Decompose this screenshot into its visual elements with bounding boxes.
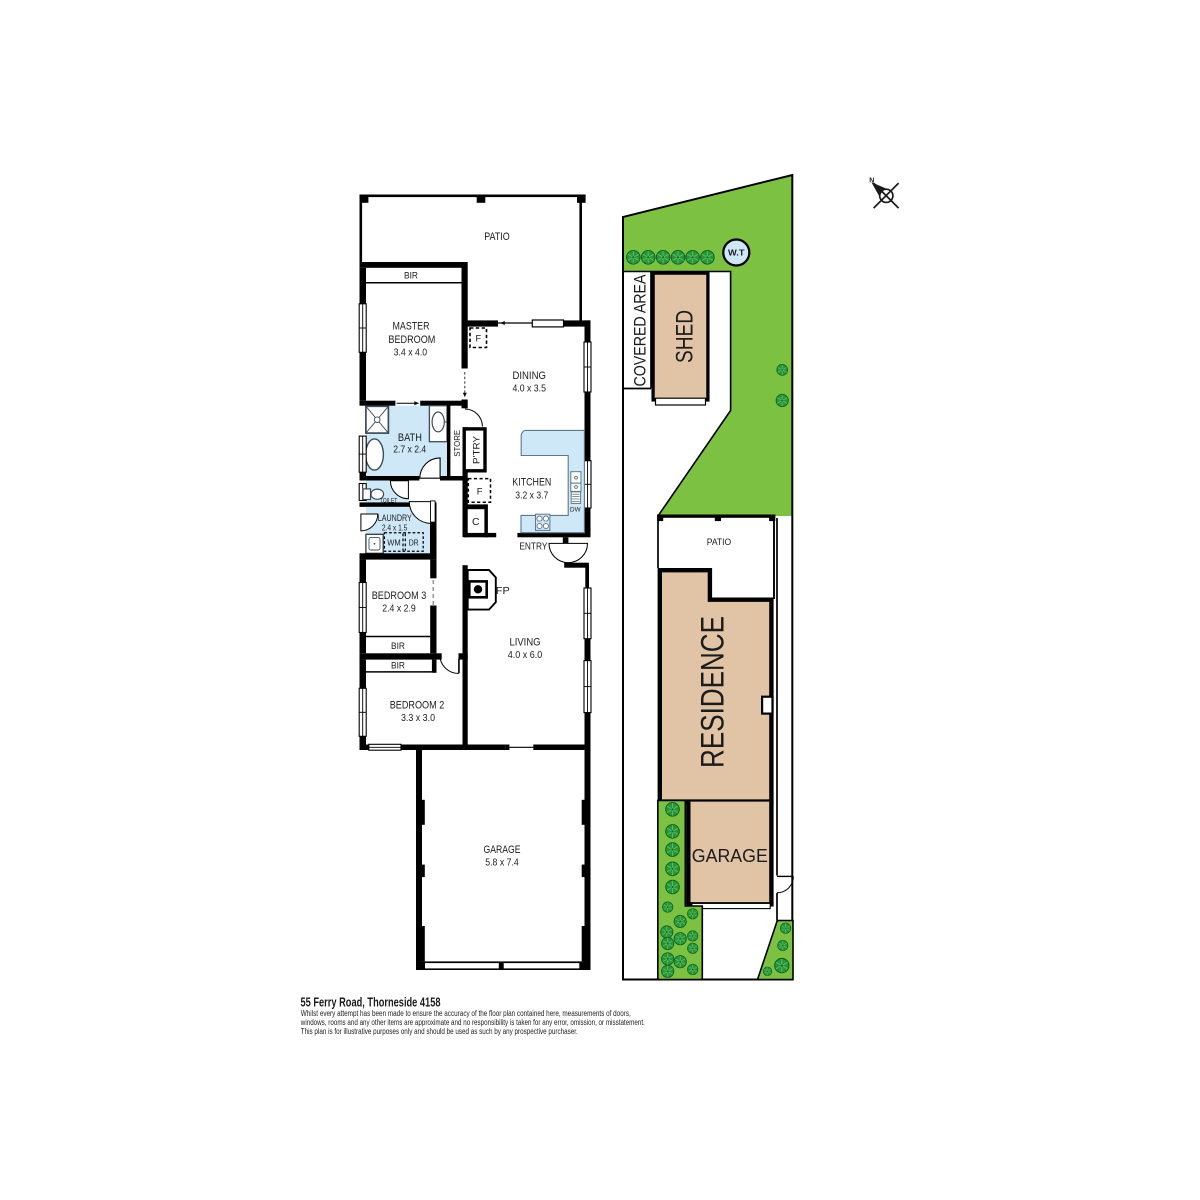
svg-text:GARAGE: GARAGE	[484, 844, 521, 856]
svg-text:PATIO: PATIO	[707, 537, 732, 548]
svg-text:4.0 x 6.0: 4.0 x 6.0	[508, 649, 543, 661]
svg-text:2.7 x 2.4: 2.7 x 2.4	[393, 444, 426, 456]
svg-text:5.8 x 7.4: 5.8 x 7.4	[485, 856, 519, 868]
svg-text:DW: DW	[570, 507, 581, 514]
svg-text:SHED: SHED	[672, 310, 699, 363]
svg-text:GARAGE: GARAGE	[692, 846, 768, 866]
svg-text:4.0 x 3.5: 4.0 x 3.5	[512, 382, 546, 394]
svg-text:C: C	[472, 516, 480, 528]
svg-text:DR: DR	[409, 538, 419, 547]
svg-text:BEDROOM: BEDROOM	[388, 334, 435, 346]
svg-text:WM: WM	[387, 538, 401, 547]
svg-text:BEDROOM 3: BEDROOM 3	[372, 590, 427, 602]
svg-text:DINING: DINING	[512, 370, 546, 382]
svg-text:N: N	[869, 178, 874, 185]
svg-text:P'TRY: P'TRY	[471, 436, 481, 464]
svg-text:LAUNDRY: LAUNDRY	[378, 513, 412, 523]
svg-text:windows, rooms and any other i: windows, rooms and any other items are a…	[300, 1018, 645, 1027]
svg-text:PATIO: PATIO	[484, 231, 510, 243]
svg-text:55 Ferry Road, Thorneside 4158: 55 Ferry Road, Thorneside 4158	[301, 996, 441, 1010]
svg-text:COVERED AREA: COVERED AREA	[631, 274, 650, 387]
svg-text:BIR: BIR	[391, 641, 405, 651]
svg-text:2.4 x 2.9: 2.4 x 2.9	[382, 602, 416, 614]
svg-text:3.4 x 4.0: 3.4 x 4.0	[394, 346, 428, 358]
svg-text:3.2 x 3.7: 3.2 x 3.7	[515, 489, 548, 501]
svg-text:KITCHEN: KITCHEN	[512, 477, 551, 489]
svg-text:RESIDENCE: RESIDENCE	[695, 616, 731, 768]
svg-text:This plan is for illustrative: This plan is for illustrative purposes o…	[301, 1027, 578, 1036]
svg-text:FP: FP	[496, 586, 510, 597]
svg-text:MASTER: MASTER	[393, 321, 430, 333]
svg-text:STORE: STORE	[453, 429, 462, 457]
svg-text:F: F	[477, 486, 483, 496]
svg-text:BIR: BIR	[404, 271, 418, 281]
svg-text:F: F	[476, 334, 482, 344]
svg-text:ENTRY: ENTRY	[519, 541, 547, 552]
svg-text:3.3 x 3.0: 3.3 x 3.0	[401, 712, 435, 724]
svg-text:BATH: BATH	[398, 432, 422, 444]
svg-text:BEDROOM 2: BEDROOM 2	[390, 700, 445, 712]
svg-text:BIR: BIR	[391, 661, 405, 671]
svg-text:2.4 x 1.5: 2.4 x 1.5	[382, 523, 408, 533]
svg-text:LIVING: LIVING	[510, 637, 541, 649]
svg-text:Whilst every attempt has been: Whilst every attempt has been made to en…	[301, 1009, 631, 1018]
svg-text:W.T: W.T	[728, 248, 745, 258]
